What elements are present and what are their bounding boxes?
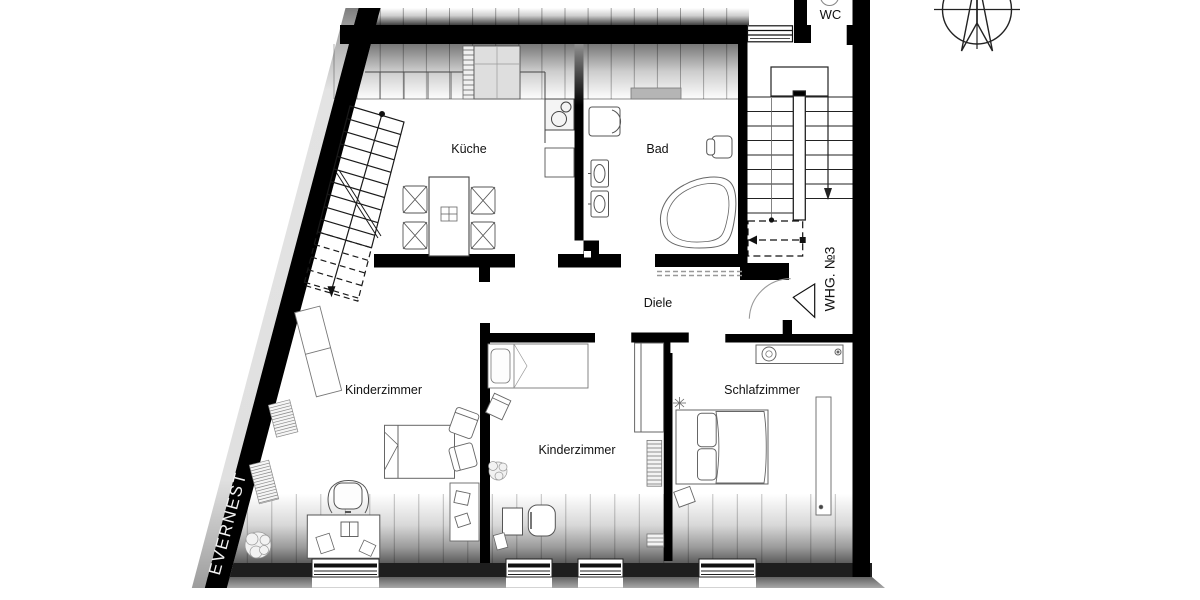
svg-text:Kinderzimmer: Kinderzimmer xyxy=(538,443,615,457)
svg-text:WHG. №3: WHG. №3 xyxy=(822,246,838,311)
svg-text:WC: WC xyxy=(820,7,842,22)
svg-text:Diele: Diele xyxy=(644,296,673,310)
svg-text:Kinderzimmer: Kinderzimmer xyxy=(345,383,422,397)
svg-text:Küche: Küche xyxy=(451,142,486,156)
svg-text:Schlafzimmer: Schlafzimmer xyxy=(724,383,800,397)
svg-text:Bad: Bad xyxy=(646,142,668,156)
